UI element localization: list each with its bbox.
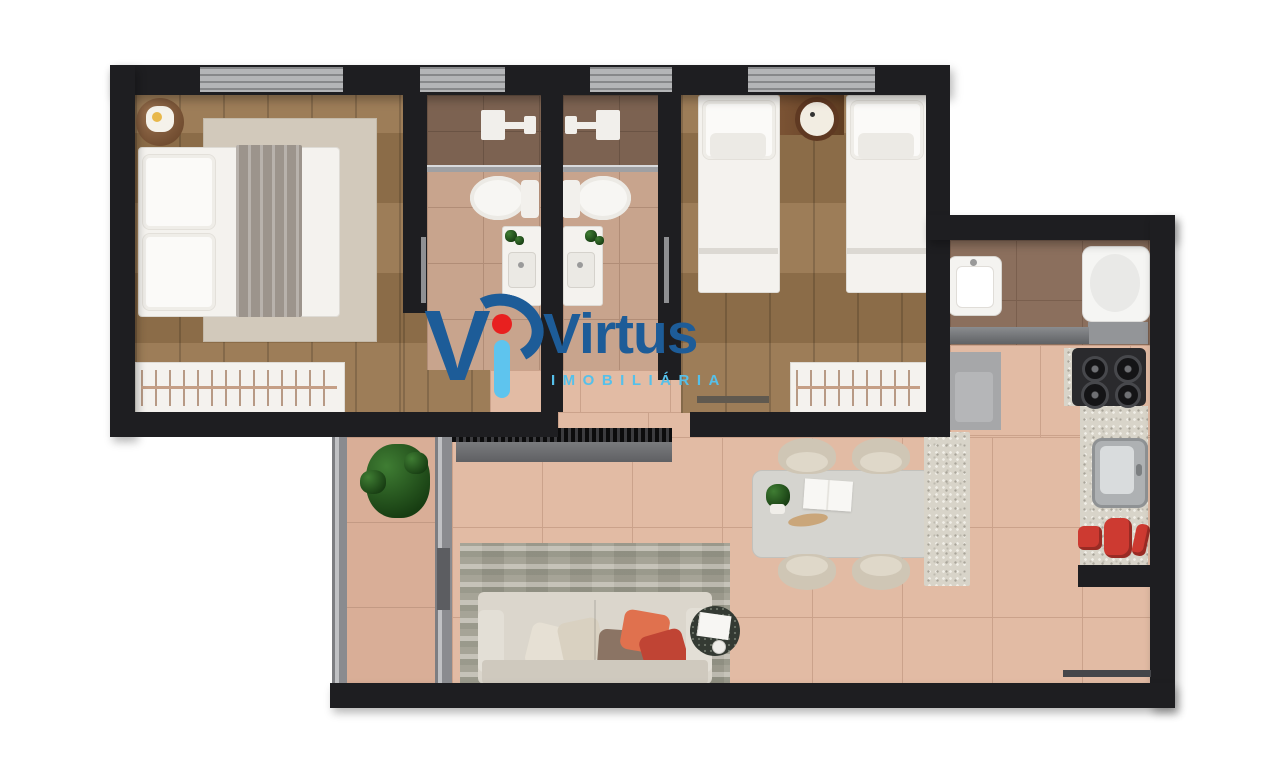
dining-chair-bottom-2-seat <box>860 556 902 576</box>
stove-burner-2 <box>1114 355 1142 383</box>
red-appliance-2 <box>1104 518 1132 558</box>
side-table-magazine <box>696 612 731 640</box>
balcony-door-handle <box>437 548 450 610</box>
bath1-glass-partition <box>427 165 541 172</box>
floorplan-canvas: V Virtus IMOBILIÁRIA <box>0 0 1280 773</box>
clock <box>795 97 839 141</box>
bath2-sink <box>567 252 595 288</box>
red-appliance-1 <box>1078 526 1102 550</box>
service-counter <box>947 327 1089 344</box>
wall-kitchen-stub <box>1078 565 1150 587</box>
logo-wordmark: Virtus <box>543 306 698 363</box>
window-bathroom2 <box>590 67 672 92</box>
bath2-toilet-bowl <box>575 176 631 220</box>
washing-machine-door <box>955 372 993 422</box>
dining-chair-top-1-seat <box>786 452 828 472</box>
wall-bottom <box>330 683 1175 708</box>
balcony-plant-3 <box>404 452 428 474</box>
stove-burner-4 <box>1115 382 1141 408</box>
bath2-shower-knob <box>565 116 577 134</box>
bath2-shower-bar <box>574 122 596 129</box>
entry-threshold <box>1063 670 1151 677</box>
logo-i-dot <box>492 314 512 334</box>
bath1-faucet <box>518 262 524 268</box>
tray-food <box>152 112 162 122</box>
logo-i-stem <box>494 340 510 398</box>
wall-south-bedroom2 <box>690 412 950 437</box>
bath1-toilet-tank <box>521 180 539 218</box>
bath1-toilet-bowl <box>470 176 526 220</box>
bed1-pillow-bottom <box>142 233 216 311</box>
single-bed-right-fold <box>846 248 926 254</box>
sofa-back-cushion <box>482 660 708 684</box>
bedroom1-wardrobe-rail <box>141 386 337 389</box>
side-table-cup <box>712 640 726 654</box>
stove-burner-3 <box>1081 381 1109 409</box>
granite-peninsula <box>924 432 970 586</box>
wall-left <box>110 65 135 437</box>
bath2-faucet <box>577 262 583 268</box>
dining-chair-bottom-1-seat <box>786 556 828 576</box>
kitchen-sink-basin <box>1100 446 1134 494</box>
clock-center <box>810 112 815 117</box>
wall-kitchen-top <box>926 215 1175 240</box>
bath1-shower-fixture <box>481 110 505 140</box>
bedroom2-wardrobe-rail <box>796 386 920 389</box>
laundry-faucet <box>970 259 977 266</box>
wall-kitchen-right <box>1150 215 1175 708</box>
dining-table-magazine <box>803 478 853 511</box>
stove-burner-1 <box>1082 356 1108 382</box>
wall-south-west <box>110 412 558 437</box>
bath2-plant-2 <box>595 236 604 245</box>
bath1-shower-knob <box>524 116 536 134</box>
wall-bedroom2-right <box>926 65 950 437</box>
refrigerator-top <box>1090 254 1140 312</box>
wall-cabinet <box>1088 322 1148 344</box>
logo-subtitle: IMOBILIÁRIA <box>551 372 727 389</box>
dining-table-pot <box>770 504 785 514</box>
dining-chair-top-2-seat <box>860 452 902 472</box>
balcony-glass-rail <box>332 437 347 683</box>
bed1-pillow-top <box>142 154 216 230</box>
single-bed-left-fold <box>698 248 778 254</box>
single-bed-left-cushion <box>710 133 766 159</box>
window-bedroom1 <box>200 67 343 92</box>
kitchen-sink-faucet <box>1136 464 1142 476</box>
bath2-glass-partition <box>563 165 658 172</box>
balcony-plant-2 <box>360 470 386 494</box>
single-bed-right-cushion <box>858 133 914 159</box>
bath1-plant-2 <box>515 236 524 245</box>
bath2-shower-fixture <box>596 110 620 140</box>
throw-blanket <box>236 145 302 317</box>
brand-logo: V Virtus IMOBILIÁRIA <box>418 292 728 402</box>
laundry-tub-basin <box>956 266 994 308</box>
bath2-toilet-tank <box>562 180 580 218</box>
tv-console-body <box>456 442 672 462</box>
window-bedroom2 <box>748 67 875 92</box>
bath1-sink <box>508 252 536 288</box>
sofa-seam <box>594 600 596 660</box>
window-bathroom1 <box>420 67 505 92</box>
